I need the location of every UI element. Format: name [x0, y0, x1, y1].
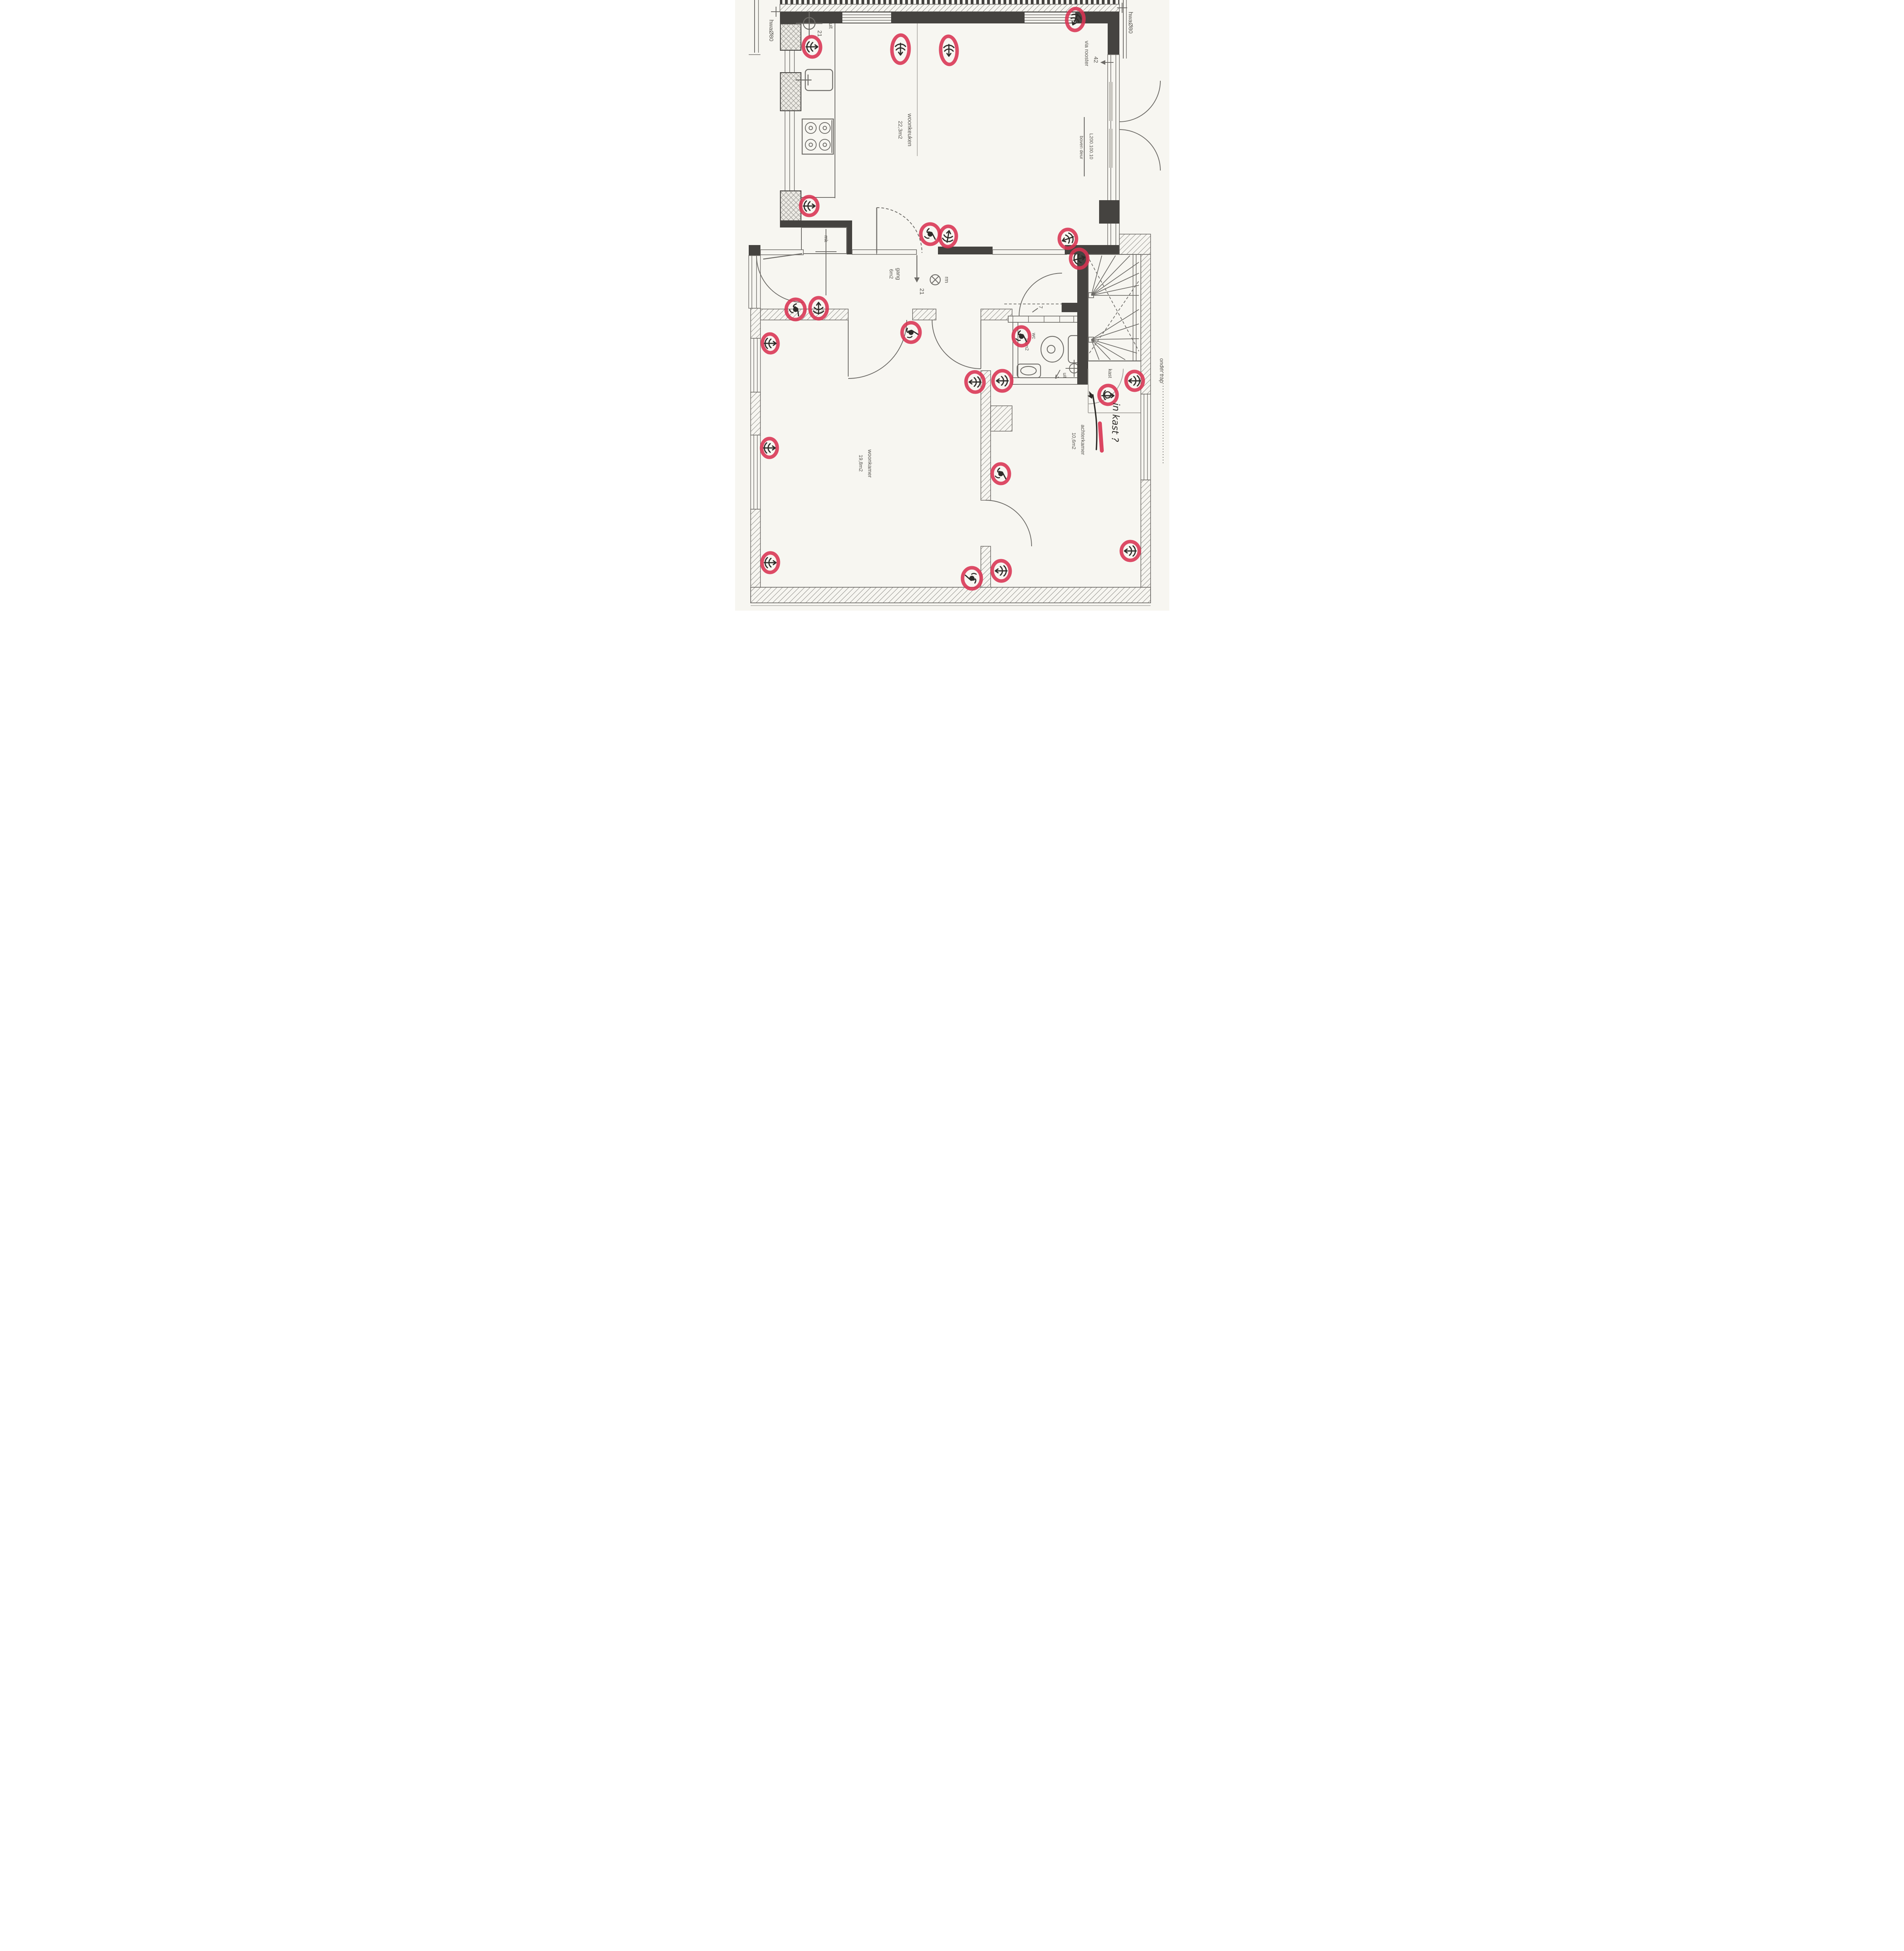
label-wc: wc	[1031, 332, 1037, 339]
top-window-1	[842, 12, 891, 23]
label-rm: rm	[944, 277, 950, 283]
label-hwa-left: hwaØ80	[768, 20, 774, 41]
label-achterkamer-area: 10,6m2	[1071, 432, 1077, 449]
red-underline	[1100, 423, 1102, 451]
label-via-rooster: via rooster	[1084, 41, 1090, 66]
label-uit-wc: uit	[1062, 373, 1068, 378]
right-window	[1141, 394, 1151, 480]
label-gang-area: 6m2	[888, 269, 894, 279]
label-woonkeuken: woonkeuken	[906, 113, 913, 146]
label-l200: L200.100.10	[1089, 133, 1094, 160]
label-onder-trap: onder trap	[1159, 358, 1165, 383]
label-hwa-right: hwaØ80	[1127, 12, 1134, 34]
label-kast: kast	[1107, 369, 1113, 378]
label-mk: mk	[823, 235, 829, 242]
label-achterkamer: achterkamer	[1080, 425, 1086, 455]
left-window-4	[751, 435, 760, 509]
label-num42: 42	[1092, 57, 1099, 63]
entry-side-window	[749, 256, 760, 308]
left-window-2	[780, 111, 801, 190]
label-num21-topleft: 21	[816, 30, 823, 37]
label-uit-topleft: uit	[828, 23, 834, 29]
label-num21-gang: 21	[918, 288, 925, 295]
label-woonkamer: woonkamer	[867, 449, 873, 478]
left-window-1	[780, 51, 801, 72]
label-woonkamer-area: 19,8m2	[858, 455, 864, 471]
left-window-3	[751, 338, 760, 392]
chimney-block	[991, 406, 1012, 431]
label-num7: 7	[1038, 306, 1044, 308]
label-boven-deur: boven deur	[1079, 136, 1084, 159]
floor-plan-scan: hwaØ80uit21woonkeuken22,3m2via rooster42…	[735, 0, 1169, 611]
handwritten-note: in kast ?	[1109, 403, 1121, 442]
label-woonkeuken-area: 22,3m2	[897, 121, 904, 139]
label-gang: gang	[895, 268, 902, 280]
